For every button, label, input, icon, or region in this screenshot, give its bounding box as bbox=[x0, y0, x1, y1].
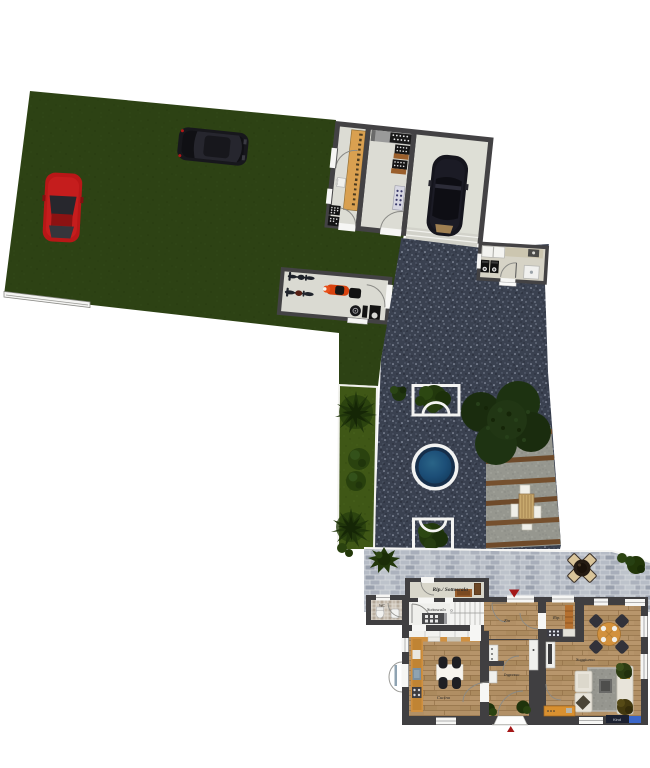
svg-text:Rip./ Sottoscala: Rip./ Sottoscala bbox=[432, 587, 469, 593]
svg-text:Soggiorno: Soggiorno bbox=[576, 657, 596, 662]
svg-text:Cucina: Cucina bbox=[437, 695, 451, 700]
svg-text:Zia: Zia bbox=[504, 618, 511, 623]
svg-text:0: 0 bbox=[451, 608, 453, 613]
svg-text:Ingresso: Ingresso bbox=[503, 672, 520, 677]
svg-text:Rip.: Rip. bbox=[552, 615, 560, 620]
svg-text:Kind: Kind bbox=[613, 717, 621, 722]
svg-text:Sottoscala: Sottoscala bbox=[427, 607, 446, 612]
svg-text:WC: WC bbox=[379, 603, 385, 608]
